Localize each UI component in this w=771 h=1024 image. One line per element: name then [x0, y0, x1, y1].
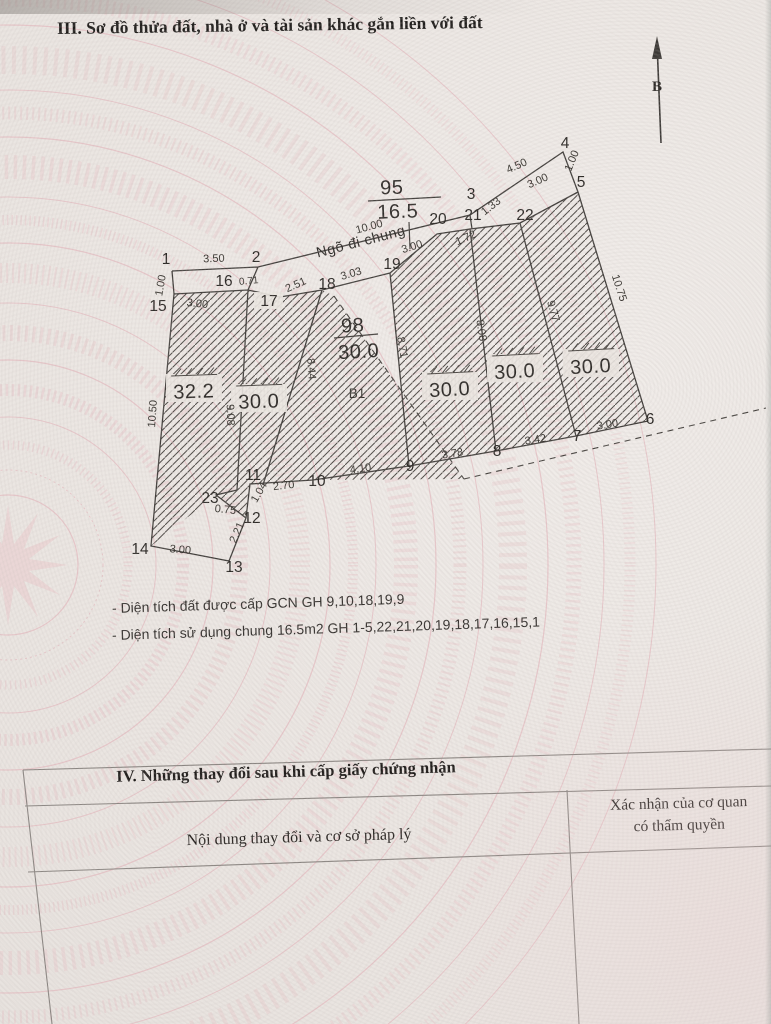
point-label: 11 — [245, 467, 261, 484]
area-label: 32.2 — [173, 380, 215, 403]
point-label: 4 — [561, 135, 570, 152]
dim-label: 8.44 — [304, 358, 317, 380]
dim-label: 1.00 — [563, 149, 582, 173]
table-header-confirmation: Xác nhận của cơ quan có thẩm quyền — [610, 791, 748, 839]
point-label: 20 — [429, 211, 447, 228]
shared-plot-number: 95 — [380, 177, 404, 200]
point-label: 22 — [516, 207, 533, 224]
dim-label: 1.33 — [479, 195, 503, 218]
point-label: 13 — [225, 559, 242, 576]
dim-label: 10.75 — [609, 273, 629, 303]
dim-label: 4.50 — [505, 156, 529, 176]
point-label: 10 — [308, 473, 326, 490]
point-label: 16 — [215, 273, 232, 290]
point-label: 21 — [464, 207, 481, 224]
point-label: 8 — [493, 443, 502, 460]
point-label: 17 — [260, 293, 277, 310]
table-header-confirmation-line2: có thẩm quyền — [610, 813, 748, 839]
dim-label: 3.78 — [441, 446, 464, 461]
point-label: 23 — [201, 490, 218, 507]
dim-label: 3.50 — [203, 253, 225, 266]
table-header-confirmation-line1: Xác nhận của cơ quan — [610, 791, 748, 817]
area-label: 30.0 — [570, 355, 612, 379]
north-arrow-icon: B — [652, 36, 662, 143]
area-label: 30.0 — [429, 378, 471, 402]
dim-label: 1.00 — [153, 274, 169, 297]
area-label: 30.0 — [238, 390, 280, 413]
main-plot-area: 30.0 — [338, 340, 380, 364]
dim-label: 10.50 — [146, 400, 160, 428]
dim-label: 3.42 — [524, 432, 547, 447]
point-label: 15 — [149, 298, 166, 315]
building-label: B1 — [349, 386, 366, 401]
point-label: 5 — [577, 174, 586, 191]
guilloche-pattern — [0, 0, 656, 1024]
dim-label: 0.71 — [239, 275, 260, 288]
point-label: 1 — [162, 251, 171, 268]
point-label: 2 — [252, 249, 261, 266]
main-plot-number: 98 — [341, 314, 365, 337]
point-label: 3 — [467, 186, 476, 203]
dim-label: 3.00 — [169, 543, 191, 557]
dim-label: 9.08 — [224, 404, 237, 426]
drum-star — [0, 505, 68, 625]
page-graphics: 32.2 30.0 30.0 30.0 30.0 95 16.5 98 30.0… — [0, 0, 771, 1024]
area-label: 30.0 — [494, 360, 536, 384]
north-label: B — [652, 79, 662, 95]
dim-label: 3.00 — [186, 297, 209, 311]
point-label: 12 — [243, 510, 260, 527]
point-label: 7 — [573, 428, 582, 445]
point-label: 6 — [646, 411, 655, 428]
point-label: 18 — [318, 276, 335, 293]
dim-label: 3.00 — [596, 417, 619, 432]
point-label: 9 — [406, 458, 415, 475]
dim-label: 8.71 — [394, 336, 410, 359]
dim-label: 2.70 — [272, 479, 295, 493]
shared-plot-area: 16.5 — [377, 200, 419, 223]
point-label: 14 — [131, 541, 149, 558]
point-label: 19 — [383, 256, 400, 273]
certificate-page: 32.2 30.0 30.0 30.0 30.0 95 16.5 98 30.0… — [0, 0, 771, 1024]
